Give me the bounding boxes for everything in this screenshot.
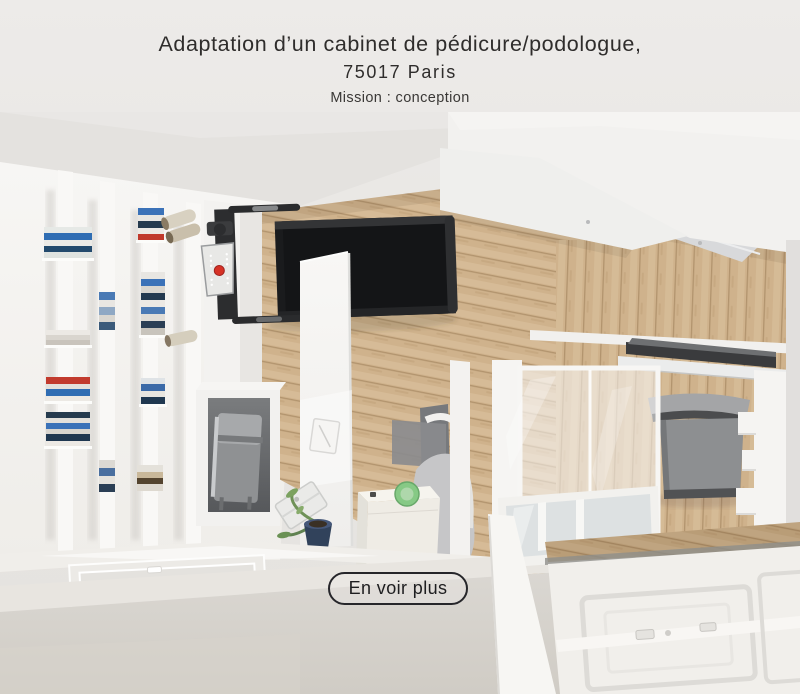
stop-button <box>214 265 224 275</box>
header: Adaptation d’un cabinet de pédicure/podo… <box>0 0 800 106</box>
shelf-fin <box>100 181 115 551</box>
book-stack <box>44 377 92 404</box>
book-stack <box>136 208 166 243</box>
book-stack <box>139 272 167 338</box>
see-more-button[interactable]: En voir plus <box>328 572 468 605</box>
light-switch <box>310 418 340 453</box>
folded-chair <box>210 413 264 512</box>
page-title: Adaptation d’un cabinet de pédicure/podo… <box>0 32 800 57</box>
shelf-fin <box>143 192 158 549</box>
book-stack <box>99 292 115 330</box>
book-stack <box>137 465 163 491</box>
book-stack <box>99 460 115 492</box>
book-stack <box>44 412 92 449</box>
page: Adaptation d’un cabinet de pédicure/podo… <box>0 0 800 694</box>
storage-cabinet <box>196 382 286 526</box>
page-subtitle: Mission : conception <box>0 90 800 106</box>
see-more-label: En voir plus <box>349 578 448 599</box>
book-stack <box>44 330 92 348</box>
doors-flat <box>545 522 800 694</box>
book-stack <box>42 227 94 261</box>
render-3d-view <box>0 112 800 694</box>
book-stack <box>139 378 167 407</box>
page-title-location: 75017 Paris <box>0 62 800 83</box>
